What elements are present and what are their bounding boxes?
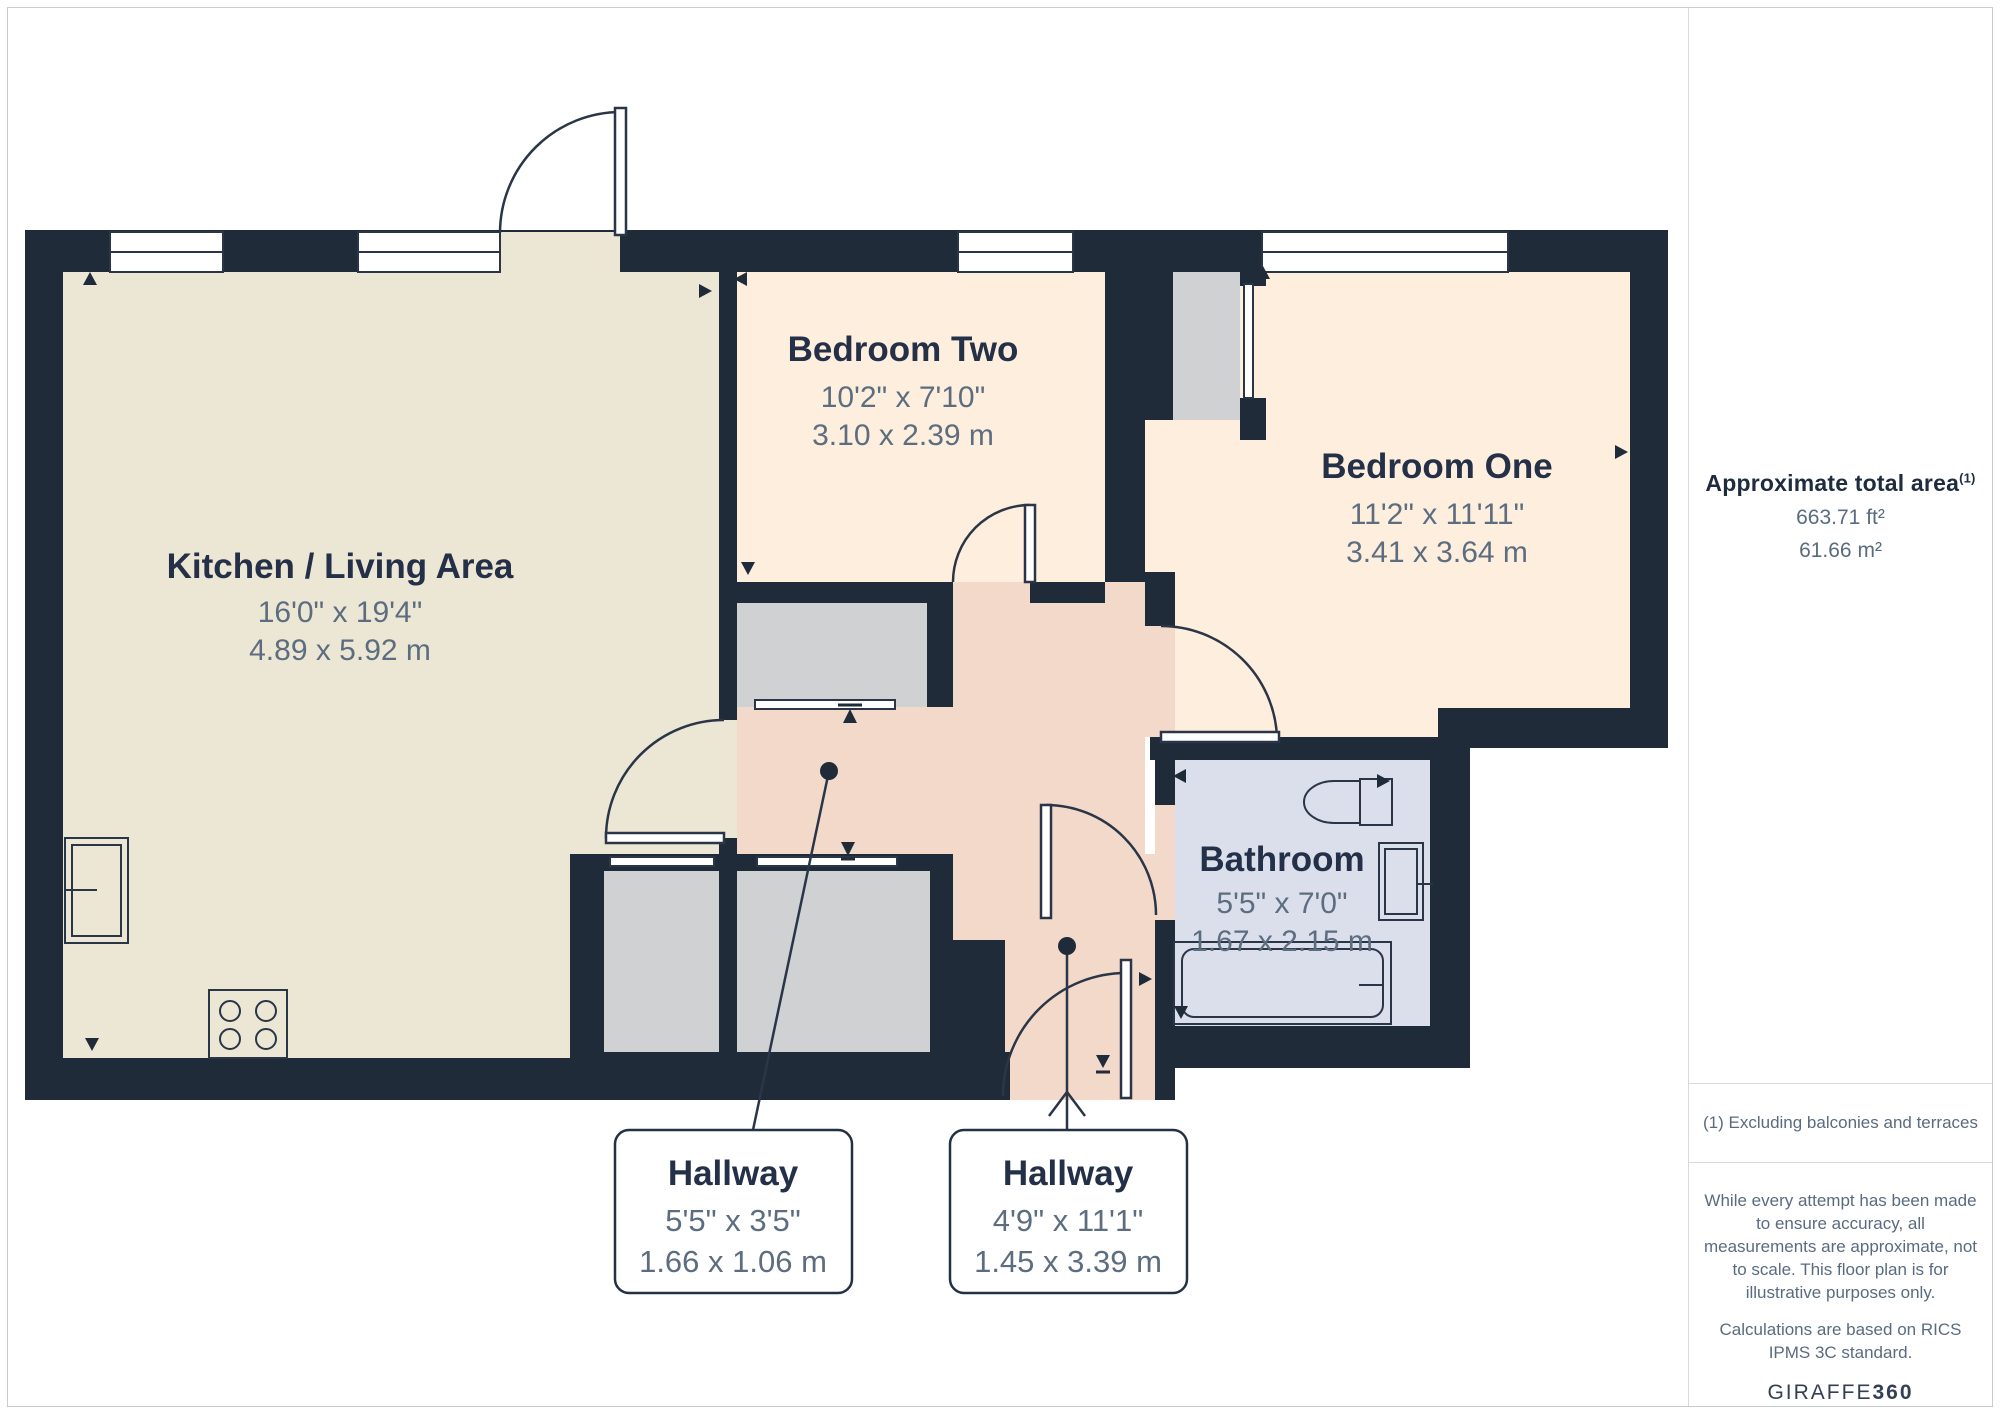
wall-bottom-bathroom (1175, 1026, 1470, 1068)
total-area-imperial: 663.71 ft² (1689, 506, 1992, 530)
wall-entry-right (1155, 1026, 1175, 1100)
bathroom-door-opening (1155, 805, 1175, 920)
footnote-text: (1) Excluding balconies and terraces (1703, 1113, 1978, 1133)
wall-bottom-kitchen (25, 1058, 610, 1100)
entry-top-opening (500, 232, 620, 272)
wall-closet-right-side (930, 854, 953, 944)
hallway-entry-floor (1005, 1026, 1155, 1100)
bedroom-two-dim-imperial: 10'2" x 7'10" (821, 381, 986, 414)
floor-plan-svg: Kitchen / Living Area 16'0" x 19'4" 4.89… (0, 0, 1688, 1414)
wall-bedroom-one-bottom-right (1438, 708, 1668, 748)
bathroom-title: Bathroom (1199, 840, 1364, 879)
hallway-closet-top (737, 603, 927, 707)
wall-left (25, 230, 63, 1100)
hallway-large-dim-metric: 1.45 x 3.39 m (974, 1244, 1162, 1279)
wall-bathroom-left-bottom (1155, 920, 1175, 1026)
standard-note-text: Calculations are based on RICS IPMS 3C s… (1705, 1318, 1977, 1364)
wall-bed2-bottom (719, 582, 953, 603)
bathroom-label: Bathroom 5'5" x 7'0" 1.67 x 2.15 m (1191, 840, 1373, 958)
hallway-small-dim-metric: 1.66 x 1.06 m (639, 1244, 827, 1279)
storage-closet-left (604, 871, 719, 1052)
wall-bathroom-left-top (1155, 760, 1175, 805)
wall-entry-left (930, 940, 1005, 1098)
bedroom-one-label: Bedroom One 11'2" x 11'11" 3.41 x 3.64 m (1321, 447, 1552, 569)
hallway-small-dim-imperial: 5'5" x 3'5" (665, 1203, 801, 1238)
closet-left-sliding-door (610, 857, 714, 866)
wall-right (1630, 230, 1668, 748)
total-area-footnote-marker: (1) (1959, 470, 1976, 485)
closet-top-sliding-door (755, 700, 895, 709)
bedroom-two-dim-metric: 3.10 x 2.39 m (812, 419, 994, 452)
kitchen-dim-metric: 4.89 x 5.92 m (249, 634, 431, 667)
bathroom-dim-metric: 1.67 x 2.15 m (1191, 925, 1373, 958)
wall-bathroom-right (1430, 742, 1470, 1068)
closet1-sliding-door (1244, 284, 1253, 398)
wall-bed1-closet-left (1145, 272, 1173, 420)
bedroom-two-label: Bedroom Two 10'2" x 7'10" 3.10 x 2.39 m (788, 330, 1019, 452)
hallway-large-dim-imperial: 4'9" x 11'1" (993, 1203, 1143, 1238)
hallway-large-title: Hallway (1003, 1154, 1134, 1193)
bedroom-one-title: Bedroom One (1321, 447, 1552, 486)
hallway-small-floor (737, 707, 953, 854)
brand-name: GIRAFFE (1767, 1381, 1872, 1404)
wall-bed2-bottom-right (1030, 582, 1105, 603)
bedroom-two-title: Bedroom Two (788, 330, 1019, 369)
total-area-title: Approximate total area(1) (1689, 470, 1992, 497)
hallway-callouts: Hallway 5'5" x 3'5" 1.66 x 1.06 m Hallwa… (615, 1130, 1187, 1293)
kitchen-title: Kitchen / Living Area (167, 547, 514, 586)
kitchen-door-opening (719, 720, 737, 838)
wall-kitchen-step (570, 854, 604, 1058)
sidebar: Approximate total area(1) 663.71 ft² 61.… (1688, 8, 1992, 1406)
wall-closet-top-jamb (927, 582, 953, 707)
brand-suffix: 360 (1872, 1381, 1913, 1404)
hallway-large-callout: Hallway 4'9" x 11'1" 1.45 x 3.39 m (950, 1130, 1187, 1293)
bed2-door-opening (953, 582, 1030, 603)
kitchen-floor-lower (63, 854, 570, 1058)
wall-kitchen-bed2 (719, 272, 737, 720)
wall-bed1-left (1105, 272, 1145, 582)
hallway-small-title: Hallway (668, 1154, 799, 1193)
giraffe360-logo: GIRAFFE360 (1689, 1381, 1992, 1405)
wall-kitchen-closets (719, 838, 737, 1058)
bathroom-dim-imperial: 5'5" x 7'0" (1216, 887, 1347, 920)
footnote-block: (1) Excluding balconies and terraces (1689, 1083, 1992, 1162)
total-area-block: Approximate total area(1) 663.71 ft² 61.… (1689, 470, 1992, 563)
hallway-small-callout: Hallway 5'5" x 3'5" 1.66 x 1.06 m (615, 1130, 852, 1293)
floor-plan-page: Kitchen / Living Area 16'0" x 19'4" 4.89… (0, 0, 2000, 1414)
bedroom-one-dim-imperial: 11'2" x 11'11" (1350, 498, 1525, 531)
bedroom-one-dim-metric: 3.41 x 3.64 m (1346, 536, 1528, 569)
wall-closet1-jamb-bottom (1240, 398, 1266, 440)
disclaimer-block: While every attempt has been made to ens… (1689, 1162, 1992, 1406)
bed1-door-opening (1145, 626, 1175, 737)
disclaimer-text: While every attempt has been made to ens… (1700, 1189, 1982, 1304)
kitchen-dim-imperial: 16'0" x 19'4" (258, 596, 423, 629)
entry-door-top (500, 108, 626, 235)
bedroom-one-closet (1173, 272, 1240, 420)
total-area-title-text: Approximate total area (1705, 470, 1959, 496)
total-area-metric: 61.66 m² (1689, 539, 1992, 563)
closet-right-sliding-door (757, 857, 897, 866)
wall-bed1-left-lower (1145, 572, 1175, 628)
storage-closet-right (737, 871, 930, 1052)
